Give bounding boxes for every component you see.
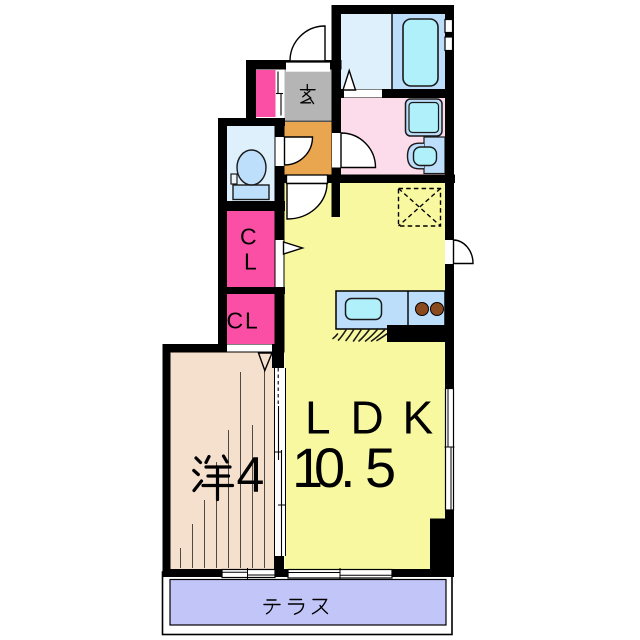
svg-text:K: K [403,392,434,444]
svg-text:C: C [240,224,257,250]
svg-text:.: . [340,436,356,499]
svg-text:4: 4 [237,447,265,503]
svg-text:L: L [245,308,258,334]
svg-text:C: C [227,308,244,334]
svg-text:5: 5 [365,436,396,499]
svg-text:L: L [244,249,257,275]
